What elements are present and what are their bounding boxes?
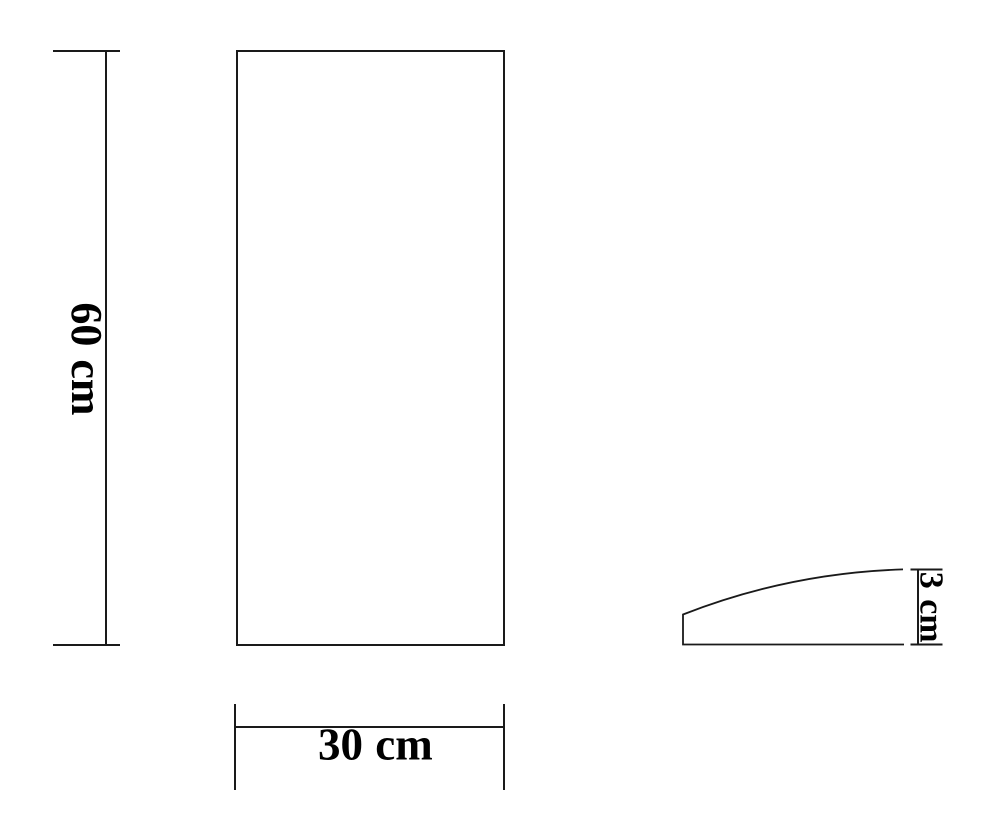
- svg-text:30 cm: 30 cm: [318, 720, 433, 770]
- svg-text:60 cm: 60 cm: [62, 302, 111, 415]
- svg-text:3 cm: 3 cm: [913, 572, 950, 643]
